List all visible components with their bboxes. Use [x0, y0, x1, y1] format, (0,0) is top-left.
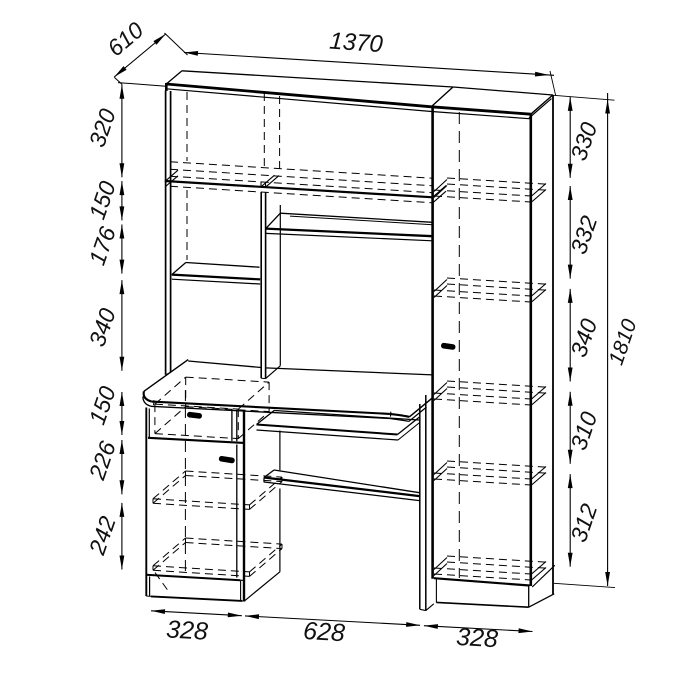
svg-text:328: 328	[455, 623, 498, 654]
svg-text:628: 628	[302, 617, 345, 648]
svg-text:328: 328	[165, 615, 208, 646]
svg-text:1370: 1370	[329, 28, 385, 59]
